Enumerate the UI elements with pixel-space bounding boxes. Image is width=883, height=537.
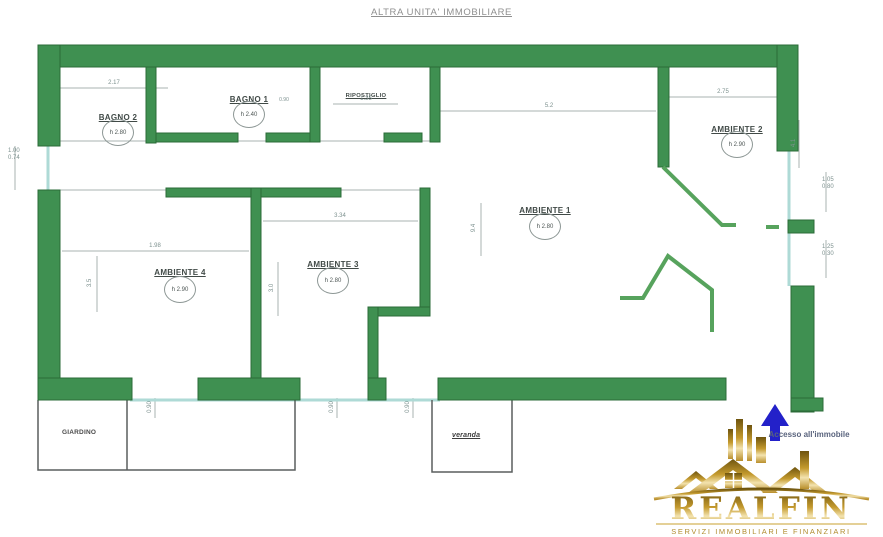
dim-value: 0.74 [8,155,20,162]
wall-segment [438,378,726,400]
dim-amb3-top: 3.34 [334,213,346,219]
dim-ripostiglio-width: 1.35 [360,96,372,102]
dim-bagno1-door: 0.90 [279,97,289,103]
wall-segment [251,188,261,378]
height-badge-bagno2: h 2.80 [102,119,134,146]
dim-top-left: 2.17 [108,80,120,86]
dim-value: 1.00 [8,148,20,155]
realfin-logo: REALFIN SERVIZI IMMOBILIARI E FINANZIARI [640,415,883,537]
dim-amb1-side: 9.4 [471,224,477,232]
wall-segment [791,286,814,412]
dim-window-right-a: 1.05 0.80 [822,177,834,191]
logo-brand-text: REALFIN [670,491,851,527]
dim-bottom-window-3: 0.90 [405,401,411,413]
wall-segment [791,398,823,411]
annex-center-label: veranda [452,432,480,439]
floorplan-page: ALTRA UNITA' IMMOBILIARE [0,0,883,537]
wall-segment [198,378,300,400]
logo-tagline-text: SERVIZI IMMOBILIARI E FINANZIARI [671,527,850,536]
thin-partition-lines [620,167,779,332]
wall-segment [38,45,798,67]
dim-top-center: 5.2 [545,103,553,109]
height-badge-ambiente2: h 2.90 [721,131,753,158]
dim-value: 1.05 [822,177,834,184]
wall-segment [420,188,430,312]
wall-segment [166,188,254,197]
dim-bottom-window-1: 0.90 [147,401,153,413]
dim-top-right: 2.75 [717,89,729,95]
dim-value: 0.30 [822,251,834,258]
walls [38,45,823,412]
dim-amb2-side: 4.1 [791,139,797,147]
wall-segment [38,190,60,400]
height-badge-ambiente1: h 2.80 [529,213,561,240]
wall-segment [430,67,440,142]
logo-house-icon [654,419,869,499]
dim-window-left: 1.00 0.74 [8,148,20,162]
annex-left-label: GIARDINO [62,429,96,436]
annex-outlines [38,400,512,472]
wall-segment [368,378,386,400]
wall-segment [310,67,320,142]
wall-segment [38,378,132,400]
dim-bottom-window-2: 0.90 [329,401,335,413]
height-badge-bagno1: h 2.40 [233,101,265,128]
wall-segment [658,67,669,167]
wall-segment [156,133,238,142]
wall-segment [38,45,60,146]
wall-segment [146,67,156,143]
dim-window-right-b: 1.25 0.30 [822,244,834,258]
wall-segment [788,220,814,233]
dim-amb4-top: 1.98 [149,243,161,249]
dim-amb3-side: 3.0 [269,284,275,292]
dim-amb4-side: 3.5 [87,279,93,287]
height-badge-ambiente4: h 2.90 [164,276,196,303]
dim-value: 0.80 [822,184,834,191]
wall-segment [253,188,341,197]
wall-segment [266,133,314,142]
wall-segment [368,307,378,378]
dim-value: 1.25 [822,244,834,251]
height-badge-ambiente3: h 2.80 [317,267,349,294]
wall-segment [384,133,422,142]
